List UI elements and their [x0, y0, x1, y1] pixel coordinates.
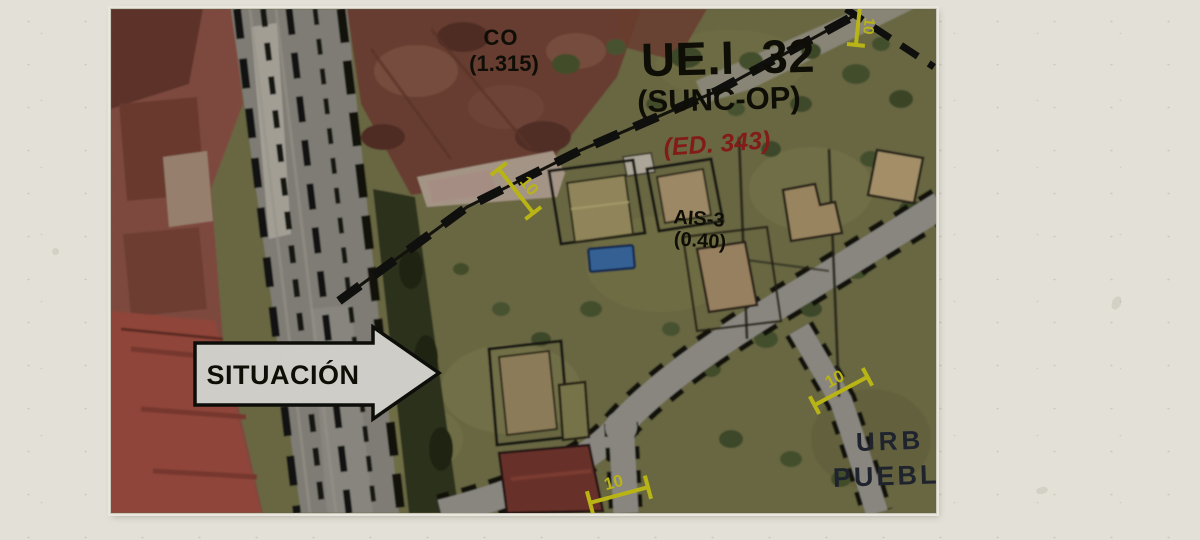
aerial-photo: 10 10 10 10 CO	[111, 9, 936, 513]
situation-map-image: 10 10 10 10 CO	[110, 8, 937, 514]
paper-smudge	[1035, 486, 1048, 495]
paper-smudge	[1110, 295, 1124, 311]
grain-overlay	[111, 9, 936, 513]
scanned-document-page: 10 10 10 10 CO	[0, 0, 1200, 540]
paper-smudge	[52, 248, 59, 255]
